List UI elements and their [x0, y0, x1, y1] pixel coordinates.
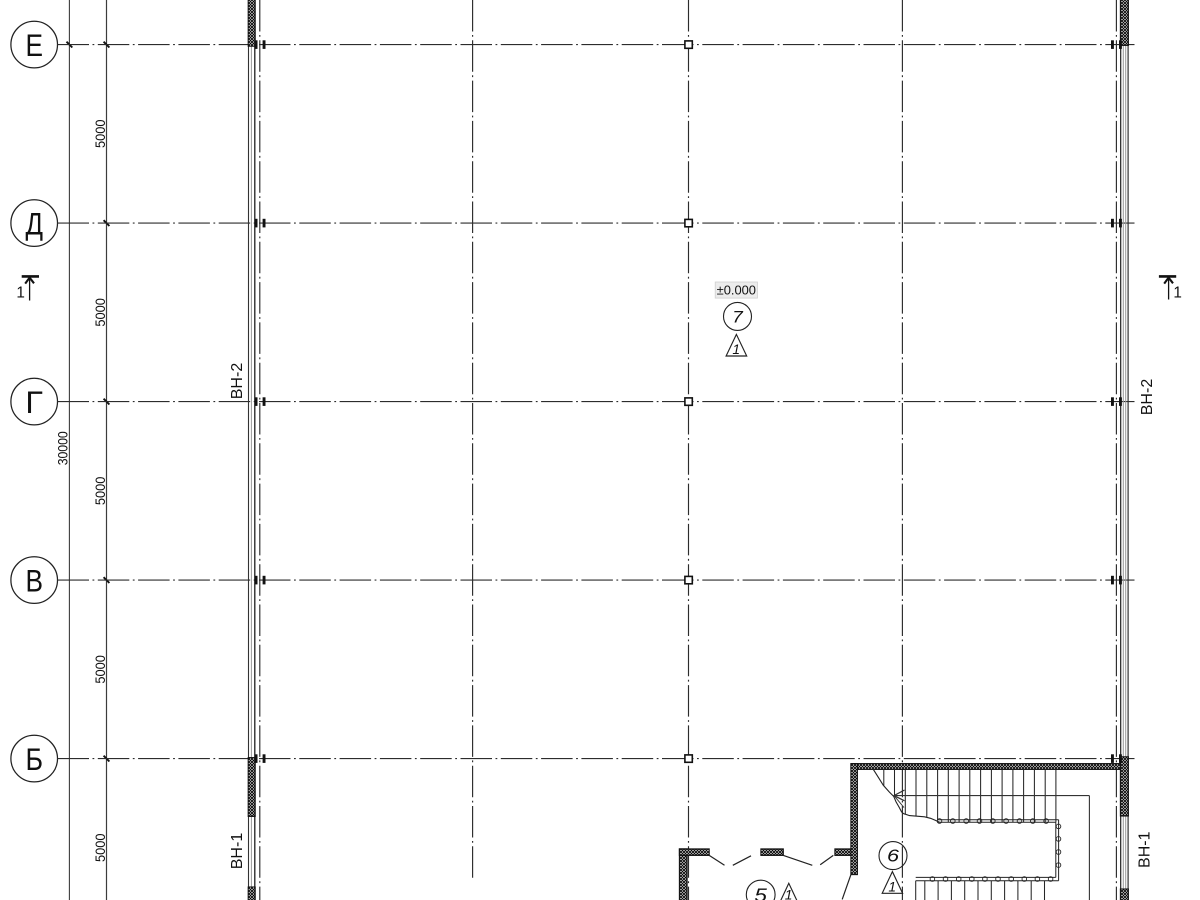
svg-text:1: 1 [1173, 285, 1182, 302]
svg-text:30000: 30000 [55, 431, 70, 465]
svg-text:±0.000: ±0.000 [717, 282, 756, 297]
svg-text:ВН-1: ВН-1 [1137, 831, 1154, 868]
svg-text:5000: 5000 [93, 119, 108, 148]
svg-text:1: 1 [16, 285, 25, 302]
svg-text:ВН-1: ВН-1 [229, 833, 246, 870]
svg-text:Б: Б [25, 741, 43, 777]
svg-text:7: 7 [732, 307, 743, 326]
svg-text:6: 6 [887, 846, 899, 866]
svg-text:5000: 5000 [93, 655, 108, 684]
svg-text:5000: 5000 [93, 298, 108, 327]
svg-text:ВН-2: ВН-2 [229, 363, 246, 400]
svg-text:Г: Г [25, 384, 43, 420]
svg-text:5: 5 [754, 885, 768, 900]
svg-text:1: 1 [888, 880, 896, 895]
svg-text:1: 1 [732, 342, 740, 357]
svg-text:5000: 5000 [93, 476, 108, 505]
svg-text:Д: Д [25, 205, 43, 241]
svg-text:5000: 5000 [93, 833, 108, 862]
svg-text:В: В [25, 562, 43, 598]
svg-text:ВН-2: ВН-2 [1139, 379, 1156, 416]
svg-text:Е: Е [25, 27, 43, 63]
svg-text:1: 1 [785, 888, 793, 900]
